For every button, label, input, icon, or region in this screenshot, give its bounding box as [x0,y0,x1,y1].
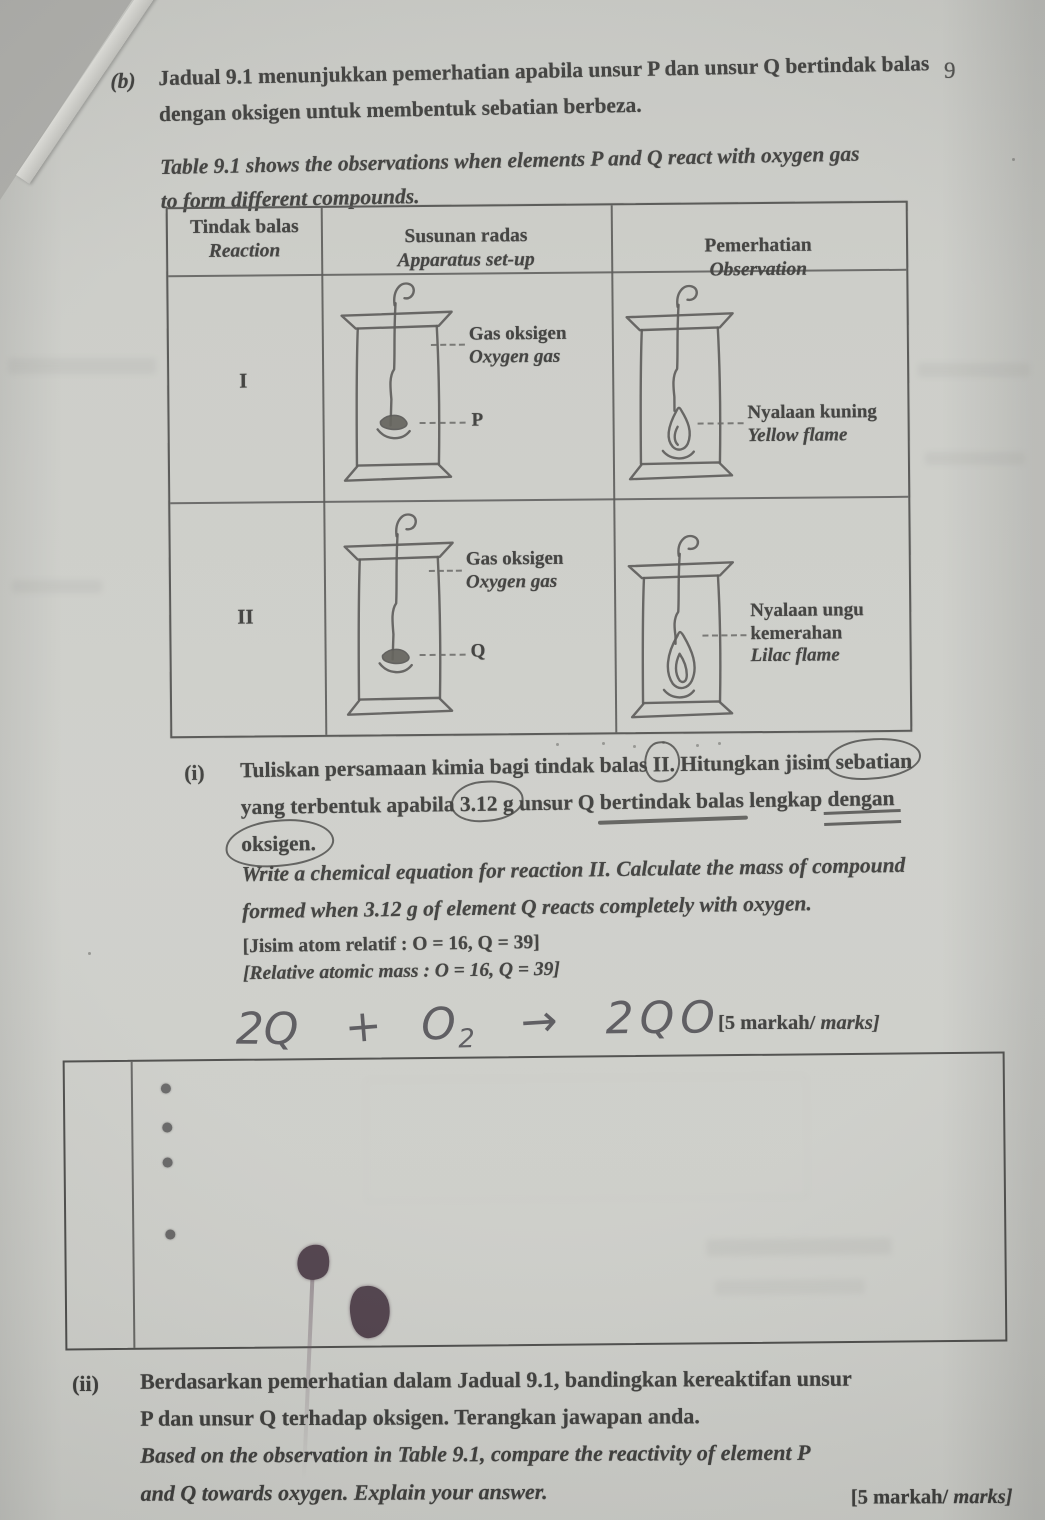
answer-box-margin-line [131,1062,136,1348]
row2-gas-label-malay: Gas oksigen [466,548,564,571]
question-i-malay-line2: yang terbentuk apabila 3.12 g unsur Q be… [241,783,895,822]
equation-oxygen-subscript: 2 [458,1024,475,1054]
question-ii-english-line2: and Q towards oxygen. Explain your answe… [140,1476,547,1509]
row2-observation-malay-line1: Nyalaan ungu [750,599,864,622]
question-ii-malay-line2: P dan unsur Q terhadap oksigen. Terangka… [140,1400,700,1433]
show-through-artifact [12,580,102,593]
hole-punch-dot [163,1157,173,1167]
row1-observation-label: Nyalaan kuning Yellow flame [747,401,877,447]
question-i-malay-line3: oksigen. [241,828,316,859]
header-reaction-english: Reaction [168,239,321,264]
row2-observation-english: Lilac flame [751,644,865,667]
ink-blot [294,1241,333,1283]
table-9-1: Tindak balas Reaction Susunan radas Appa… [166,201,913,738]
row2-gas-label: Gas oksigen Oxygen gas [466,548,564,594]
marks-english: marks] [815,1012,879,1034]
answer-box [63,1051,1008,1350]
row1-reaction-label: I [239,369,247,394]
show-through-artifact [706,1238,891,1257]
question-i-marks: [5 markah/ marks] [718,1012,880,1035]
row1-observation-malay: Nyalaan kuning [747,401,877,425]
hole-punch-dot [162,1122,172,1132]
header-observation: Pemerhatian Observation [611,233,905,284]
marks-malay: [5 markah/ [851,1486,948,1508]
show-through-artifact [8,358,156,374]
equation-plus-sign: + [342,1000,383,1054]
leader-line [420,654,466,656]
row2-observation-malay-line2: kemerahan [750,622,864,645]
show-through-artifact [925,452,1025,465]
row1-element-label: P [471,409,483,432]
table-row-divider [170,496,908,504]
question-ii-section: (ii) Berdasarkan pemerhatian dalam Jadua… [72,1362,1012,1366]
table-column-divider [611,205,618,732]
row1-observation-english: Yellow flame [748,424,878,448]
question-ii-label: (ii) [72,1368,99,1399]
header-observation-english: Observation [611,257,905,284]
header-apparatus-english: Apparatus set-up [321,247,611,274]
marks-malay: [5 markah/ [718,1012,815,1034]
row2-observation-label: Nyalaan ungu kemerahan Lilac flame [750,599,864,667]
equation-rhs: 2QO [605,992,721,1044]
show-through-table [365,1075,808,1201]
relative-atomic-mass-malay: [Jisim atom relatif : O = 16, Q = 39] [243,932,540,958]
page-number: 9 [944,58,956,84]
question-i-english-line2: formed when 3.12 g of element Q reacts c… [242,888,812,926]
question-ii-marks: [5 markah/ marks] [713,1486,1013,1510]
leader-line [698,422,744,424]
row2-gas-label-english: Oxygen gas [466,570,564,593]
gas-jar-observation-row2-illustration [622,531,742,730]
table-column-divider [321,208,328,735]
leader-line [429,570,462,572]
header-apparatus-malay: Susunan radas [321,223,611,250]
marks-english: marks] [948,1486,1012,1508]
header-reaction: Tindak balas Reaction [168,215,321,264]
ink-blot [346,1282,395,1340]
question-i-section: (i) Tuliskan persamaan kimia bagi tindak… [182,745,1002,756]
row2-element-label: Q [470,640,485,663]
gas-jar-apparatus-row2-illustration [337,507,461,730]
question-i-english-line1: Write a chemical equation for reaction I… [241,850,905,889]
intro-malay-line2: dengan oksigen untuk membentuk sebatian … [159,90,642,129]
row1-gas-label-english: Oxygen gas [469,345,567,368]
row2-reaction-label: II [237,604,254,629]
scanned-exam-page: 9 (b) Jadual 9.1 menunjukkan pemerhatian… [0,0,1045,1520]
question-ii-english-line1: Based on the observation in Table 9.1, c… [140,1437,810,1471]
row1-gas-label: Gas oksigen Oxygen gas [469,323,567,369]
gas-jar-observation-row1-illustration [619,280,741,493]
show-through-artifact [715,1279,865,1295]
question-ii-malay-line1: Berdasarkan pemerhatian dalam Jadual 9.1… [140,1363,852,1397]
part-label-b: (b) [110,66,136,96]
intro-english-line1: Table 9.1 shows the observations when el… [160,139,860,182]
hole-punch-dot [165,1229,175,1239]
gas-jar-apparatus-row1-illustration [334,277,461,496]
relative-atomic-mass-english: [Relative atomic mass : O = 16, Q = 39] [243,959,560,985]
equation-lhs: 2Q [236,1004,299,1055]
header-observation-malay: Pemerhatian [611,233,905,260]
leader-line [420,422,466,424]
intro-section: (b) Jadual 9.1 menunjukkan pemerhatian a… [110,43,1000,60]
leader-line [431,344,465,346]
equation-arrow: → [519,995,559,1048]
leader-line [702,634,746,636]
hole-punch-dot [161,1083,171,1093]
intro-malay-line1: Jadual 9.1 menunjukkan pemerhatian apabi… [158,48,930,93]
question-i-label: (i) [184,758,205,788]
equation-oxygen: O [421,999,457,1051]
question-i-malay-line1: Tuliskan persamaan kimia bagi tindak bal… [240,746,912,785]
show-through-artifact [918,363,1030,377]
header-apparatus: Susunan radas Apparatus set-up [321,223,611,274]
row1-gas-label-malay: Gas oksigen [469,323,567,346]
header-reaction-malay: Tindak balas [168,215,321,240]
